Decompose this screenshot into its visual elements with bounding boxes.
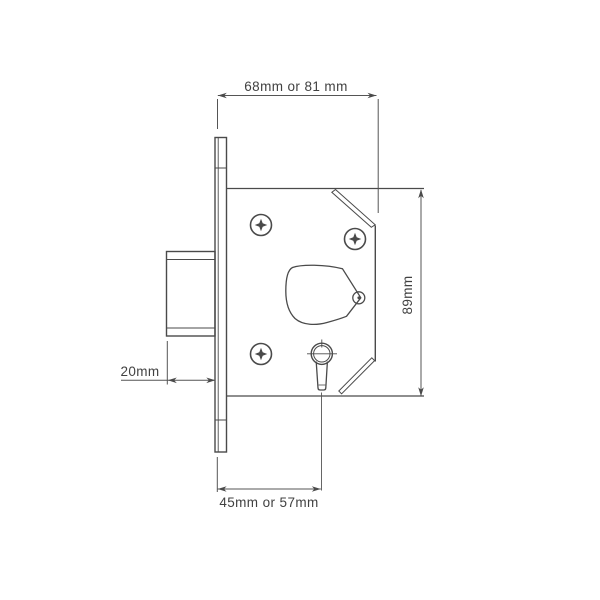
dimension-left: 20mm	[120, 341, 215, 385]
dimension-right: 89mm	[400, 189, 424, 396]
lock-parts	[167, 138, 425, 453]
dimension-top: 68mm or 81 mm	[218, 79, 379, 213]
keyhole-slot	[316, 362, 327, 391]
faceplate	[215, 138, 227, 453]
lock-dimension-diagram: 68mm or 81 mm 89mm 20mm 45mm or 57mm	[0, 0, 600, 600]
dimension-bottom: 45mm or 57mm	[217, 393, 321, 511]
lever-cam	[286, 265, 365, 324]
keyhole-icon	[307, 340, 337, 391]
bottom-right-chamfer	[339, 358, 375, 394]
top-right-chamfer	[332, 190, 375, 228]
deadbolt	[167, 252, 216, 337]
screw-bottom-left-icon	[251, 344, 272, 365]
screw-top-left-icon	[251, 215, 272, 236]
diagram-svg: 68mm or 81 mm 89mm 20mm 45mm or 57mm	[0, 0, 600, 600]
dimension-right-label: 89mm	[400, 275, 415, 314]
dimension-top-label: 68mm or 81 mm	[244, 79, 347, 94]
dimension-left-label: 20mm	[120, 364, 159, 379]
screw-top-right-icon	[345, 229, 366, 250]
dimension-bottom-label: 45mm or 57mm	[219, 495, 318, 510]
lock-case	[227, 189, 425, 397]
